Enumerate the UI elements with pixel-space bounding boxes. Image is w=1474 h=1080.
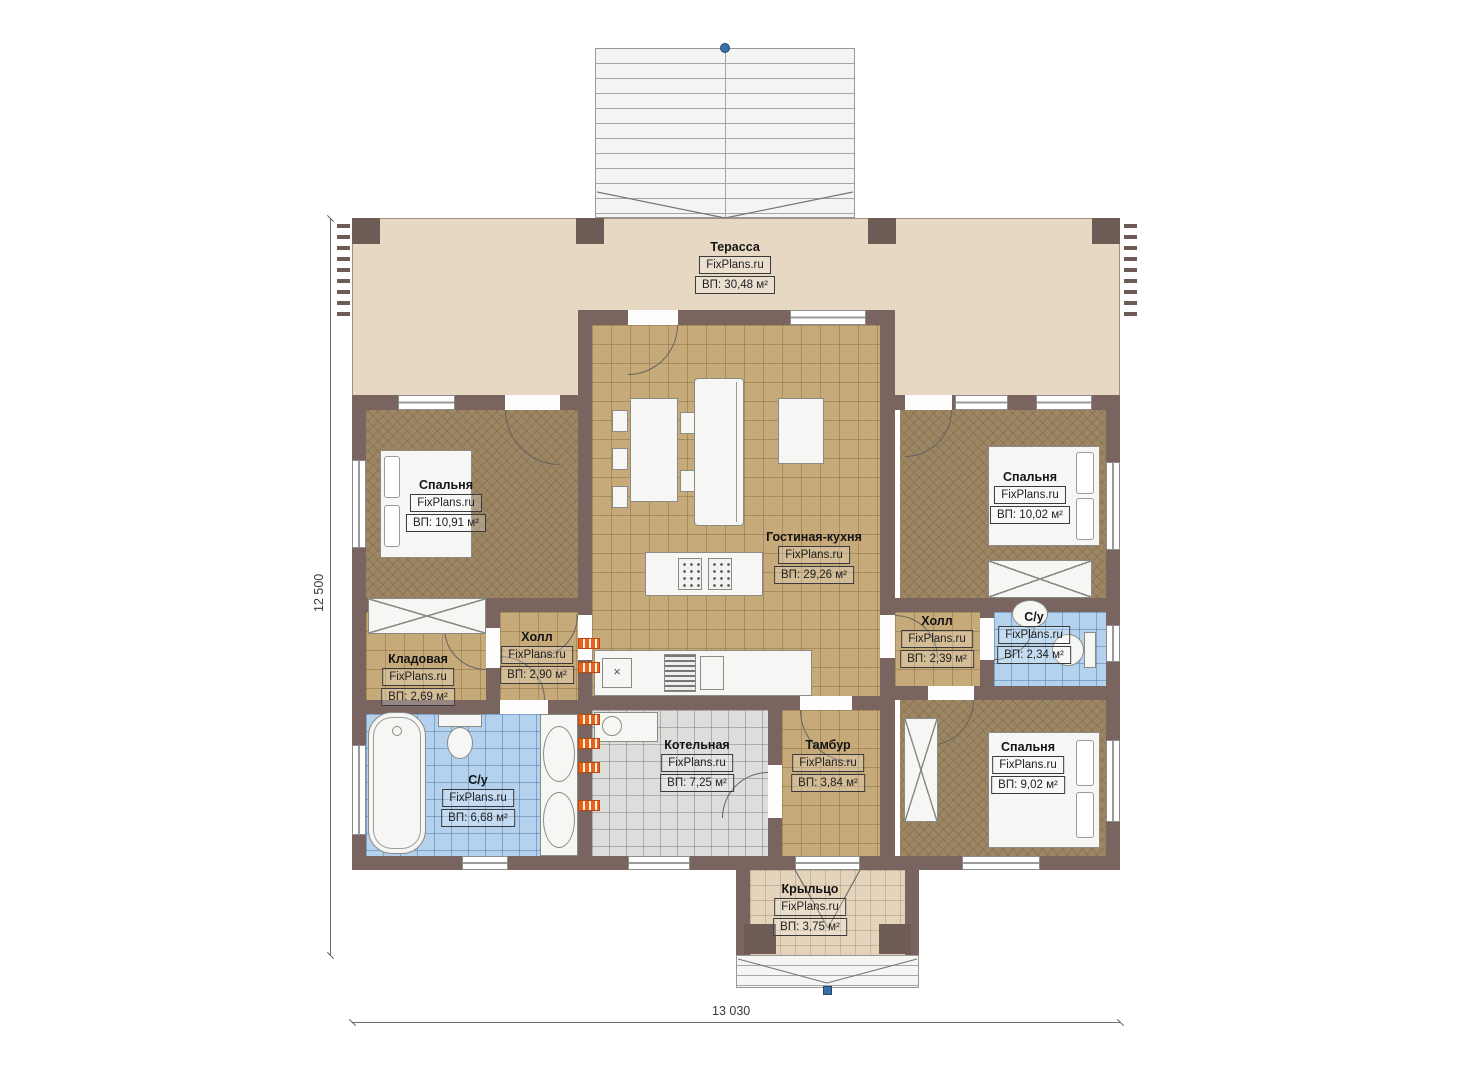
- toilet-bowl: [447, 727, 473, 759]
- appliance: [700, 656, 724, 690]
- room-label-storage: Кладовая FixPlans.ru ВП: 2,69 м²: [381, 652, 455, 706]
- wall-segment: [578, 325, 592, 856]
- entry-marker-top: [720, 43, 730, 53]
- watermark: FixPlans.ru: [994, 486, 1066, 504]
- room-name: Спальня: [991, 740, 1065, 754]
- window: [1036, 395, 1092, 410]
- room-name: Холл: [500, 630, 574, 644]
- window: [962, 856, 1040, 870]
- door-gap: [880, 615, 895, 658]
- window: [955, 395, 1008, 410]
- room-name: Котельная: [660, 738, 734, 752]
- door-gap: [980, 618, 994, 660]
- door-gap: [928, 686, 974, 700]
- radiator: [578, 714, 600, 725]
- room-name: Гостиная-кухня: [766, 530, 862, 544]
- room-area: ВП: 2,34 м²: [997, 646, 1071, 664]
- wall-segment: [886, 686, 1120, 700]
- dining-table: [630, 398, 678, 502]
- room-name: С/у: [441, 773, 515, 787]
- room-name: С/у: [997, 610, 1071, 624]
- window: [790, 310, 866, 325]
- window: [462, 856, 508, 870]
- door-gap: [628, 310, 678, 325]
- dimension-line-horizontal: [352, 1022, 1120, 1023]
- window: [352, 460, 366, 548]
- sink: [543, 726, 575, 782]
- room-label-bedroom-left: Спальня FixPlans.ru ВП: 10,91 м²: [406, 478, 486, 532]
- watermark: FixPlans.ru: [998, 626, 1070, 644]
- room-label-bedroom-bottom: Спальня FixPlans.ru ВП: 9,02 м²: [991, 740, 1065, 794]
- radiator: [578, 738, 600, 749]
- room-area: ВП: 10,02 м²: [990, 506, 1070, 524]
- door-gap: [905, 395, 952, 410]
- watermark: FixPlans.ru: [699, 256, 771, 274]
- terrace-pillar: [576, 218, 604, 244]
- room-label-boiler: Котельная FixPlans.ru ВП: 7,25 м²: [660, 738, 734, 792]
- radiator: [578, 762, 600, 773]
- room-label-bedroom-right: Спальня FixPlans.ru ВП: 10,02 м²: [990, 470, 1070, 524]
- dimension-height-label: 12 500: [312, 574, 326, 612]
- room-name: Тамбур: [791, 738, 865, 752]
- watermark: FixPlans.ru: [442, 789, 514, 807]
- watermark: FixPlans.ru: [778, 546, 850, 564]
- room-label-hall-right: Холл FixPlans.ru ВП: 2,39 м²: [900, 614, 974, 668]
- window: [352, 745, 366, 835]
- chair: [612, 486, 628, 508]
- bathtub-drain: [392, 726, 402, 736]
- window: [1106, 740, 1120, 822]
- terrace-pillar: [352, 218, 380, 244]
- room-name: Спальня: [406, 478, 486, 492]
- room-label-living-kitchen: Гостиная-кухня FixPlans.ru ВП: 29,26 м²: [766, 530, 862, 584]
- room-name: Холл: [900, 614, 974, 628]
- entry-marker-bottom: [823, 986, 832, 995]
- oven: [664, 654, 696, 692]
- room-area: ВП: 10,91 м²: [406, 514, 486, 532]
- room-area: ВП: 6,68 м²: [441, 809, 515, 827]
- watermark: FixPlans.ru: [792, 754, 864, 772]
- window: [628, 856, 690, 870]
- room-area: ВП: 30,48 м²: [695, 276, 775, 294]
- pillow: [1076, 792, 1094, 838]
- door-gap: [800, 696, 852, 710]
- room-name: Спальня: [990, 470, 1070, 484]
- window: [1106, 625, 1120, 662]
- porch-stairs-arrow: [736, 955, 919, 988]
- wardrobe: [368, 598, 486, 634]
- door-gap: [768, 765, 782, 818]
- sofa-back-line: [736, 382, 737, 522]
- wardrobe: [988, 560, 1092, 598]
- chair: [612, 410, 628, 432]
- door-gap: [505, 395, 560, 410]
- pillow: [1076, 498, 1094, 540]
- terrace-stairs-arrow: [595, 180, 855, 220]
- door-gap: [486, 628, 500, 668]
- stove-hob: [708, 558, 732, 590]
- radiator: [578, 662, 600, 673]
- watermark: FixPlans.ru: [901, 630, 973, 648]
- dimension-line-vertical: [330, 218, 331, 955]
- watermark: FixPlans.ru: [992, 756, 1064, 774]
- room-area: ВП: 7,25 м²: [660, 774, 734, 792]
- toilet-tank: [1084, 632, 1096, 668]
- room-area: ВП: 2,90 м²: [500, 666, 574, 684]
- wardrobe: [904, 718, 938, 822]
- room-name: Терасса: [695, 240, 775, 254]
- floor-plan: × Терасса FixPlans.ru ВП: 30,48 м² Спаль…: [0, 0, 1474, 1080]
- room-name: Кладовая: [381, 652, 455, 666]
- deck-ticks-left: [337, 224, 350, 316]
- dimension-width-label: 13 030: [712, 1004, 750, 1018]
- terrace-pillar: [1092, 218, 1120, 244]
- watermark: FixPlans.ru: [382, 668, 454, 686]
- watermark: FixPlans.ru: [410, 494, 482, 512]
- kitchen-island: [645, 552, 763, 596]
- stove-hob: [678, 558, 702, 590]
- deck-ticks-right: [1124, 224, 1137, 316]
- terrace-pillar: [868, 218, 896, 244]
- room-area: ВП: 29,26 м²: [774, 566, 854, 584]
- room-label-hall-left: Холл FixPlans.ru ВП: 2,90 м²: [500, 630, 574, 684]
- window: [398, 395, 455, 410]
- sink-mark: ×: [602, 658, 632, 688]
- toilet-tank: [438, 714, 482, 727]
- room-label-vestibule: Тамбур FixPlans.ru ВП: 3,84 м²: [791, 738, 865, 792]
- window: [1106, 462, 1120, 550]
- room-area: ВП: 2,69 м²: [381, 688, 455, 706]
- radiator: [578, 638, 600, 649]
- room-label-terrace: Терасса FixPlans.ru ВП: 30,48 м²: [695, 240, 775, 294]
- room-label-bath-left: С/у FixPlans.ru ВП: 6,68 м²: [441, 773, 515, 827]
- watermark: FixPlans.ru: [661, 754, 733, 772]
- watermark: FixPlans.ru: [501, 646, 573, 664]
- room-name: Крыльцо: [773, 882, 847, 896]
- pillow: [384, 456, 400, 498]
- wall-segment: [880, 325, 895, 856]
- radiator: [578, 800, 600, 811]
- door-gap: [500, 700, 548, 714]
- room-area: ВП: 9,02 м²: [991, 776, 1065, 794]
- room-label-porch: Крыльцо FixPlans.ru ВП: 3,75 м²: [773, 882, 847, 936]
- sink: [543, 792, 575, 848]
- room-area: ВП: 3,75 м²: [773, 918, 847, 936]
- pillow: [1076, 740, 1094, 786]
- pillow: [384, 505, 400, 547]
- room-area: ВП: 2,39 м²: [900, 650, 974, 668]
- chair: [612, 448, 628, 470]
- room-label-bath-right: С/у FixPlans.ru ВП: 2,34 м²: [997, 610, 1071, 664]
- boiler-dial: [602, 716, 622, 736]
- room-area: ВП: 3,84 м²: [791, 774, 865, 792]
- tv-stand: [778, 398, 824, 464]
- pillow: [1076, 452, 1094, 494]
- watermark: FixPlans.ru: [774, 898, 846, 916]
